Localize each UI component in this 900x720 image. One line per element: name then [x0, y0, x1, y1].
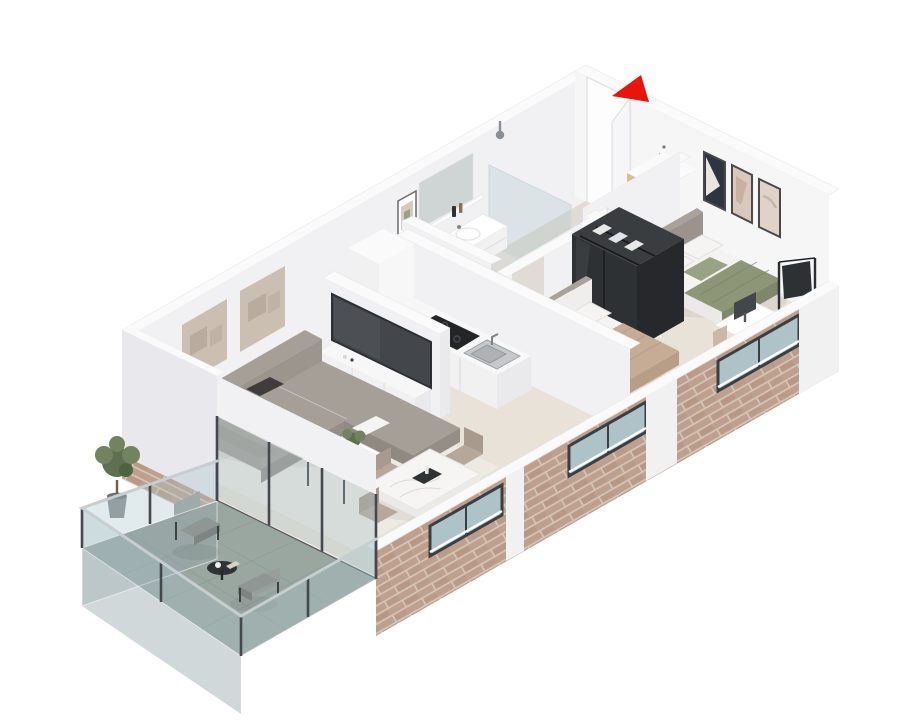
floor-plan-render [0, 0, 900, 720]
floor-plan-stage [0, 0, 900, 720]
picture-frame-3 [759, 179, 780, 237]
